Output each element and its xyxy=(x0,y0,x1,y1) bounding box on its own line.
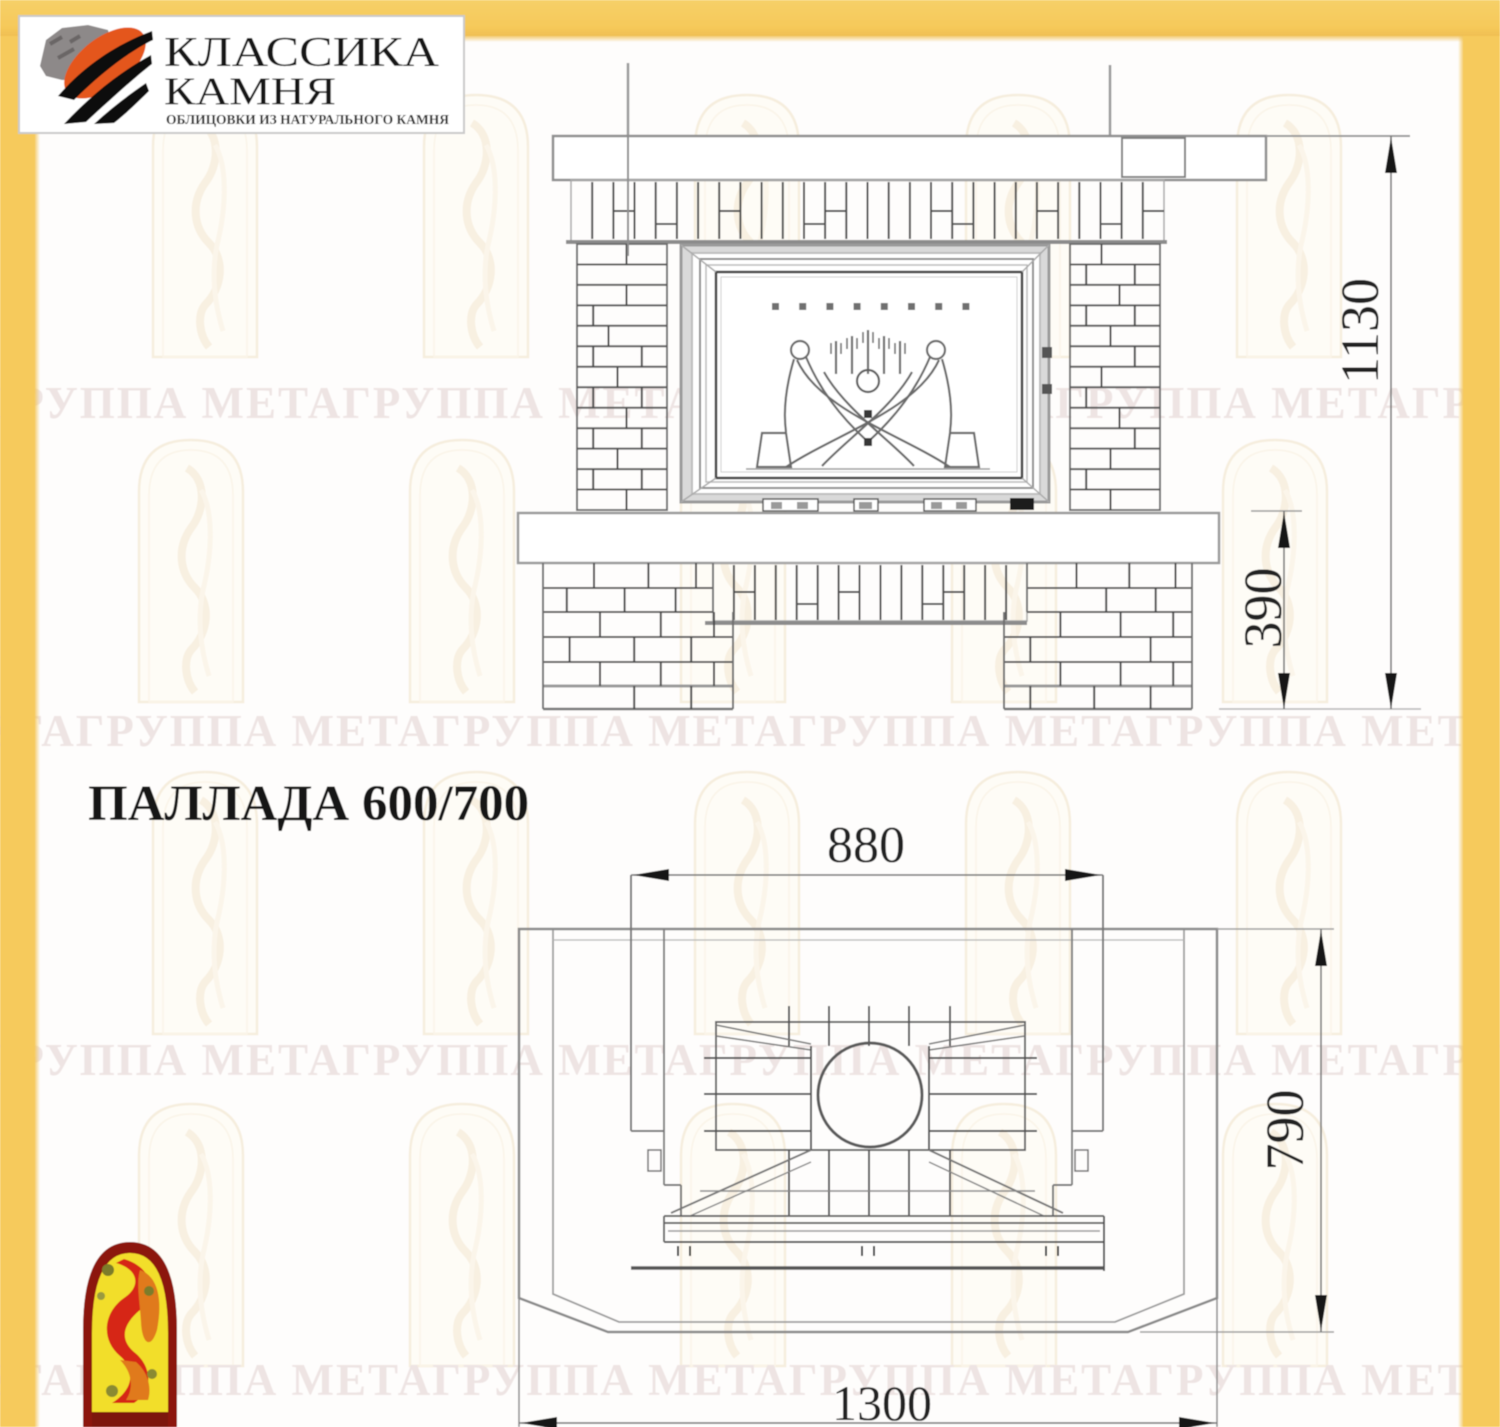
svg-text:1130: 1130 xyxy=(1330,278,1390,384)
svg-text:МЕТАГРУППА МЕТАГРУППА МЕТАГРУП: МЕТАГРУППА МЕТАГРУППА МЕТАГРУППА МЕТАГРУ… xyxy=(0,1035,1500,1085)
svg-text:790: 790 xyxy=(1255,1090,1315,1171)
svg-text:МЕТАГРУППА МЕТАГРУППА МЕТАГРУП: МЕТАГРУППА МЕТАГРУППА МЕТАГРУППА МЕТАГРУ… xyxy=(0,706,1500,756)
svg-text:390: 390 xyxy=(1233,568,1293,649)
svg-text:1300: 1300 xyxy=(832,1375,932,1427)
svg-text:КАМНЯ: КАМНЯ xyxy=(164,70,336,113)
svg-text:ОБЛИЦОВКИ ИЗ НАТУРАЛЬНОГО КАМН: ОБЛИЦОВКИ ИЗ НАТУРАЛЬНОГО КАМНЯ xyxy=(166,113,449,128)
svg-text:880: 880 xyxy=(827,817,905,874)
svg-text:МЕТАГРУППА МЕТАГРУППА МЕТАГРУП: МЕТАГРУППА МЕТАГРУППА МЕТАГРУППА МЕТАГРУ… xyxy=(0,1355,1500,1405)
svg-text:ПАЛЛАДА 600/700: ПАЛЛАДА 600/700 xyxy=(88,776,529,832)
